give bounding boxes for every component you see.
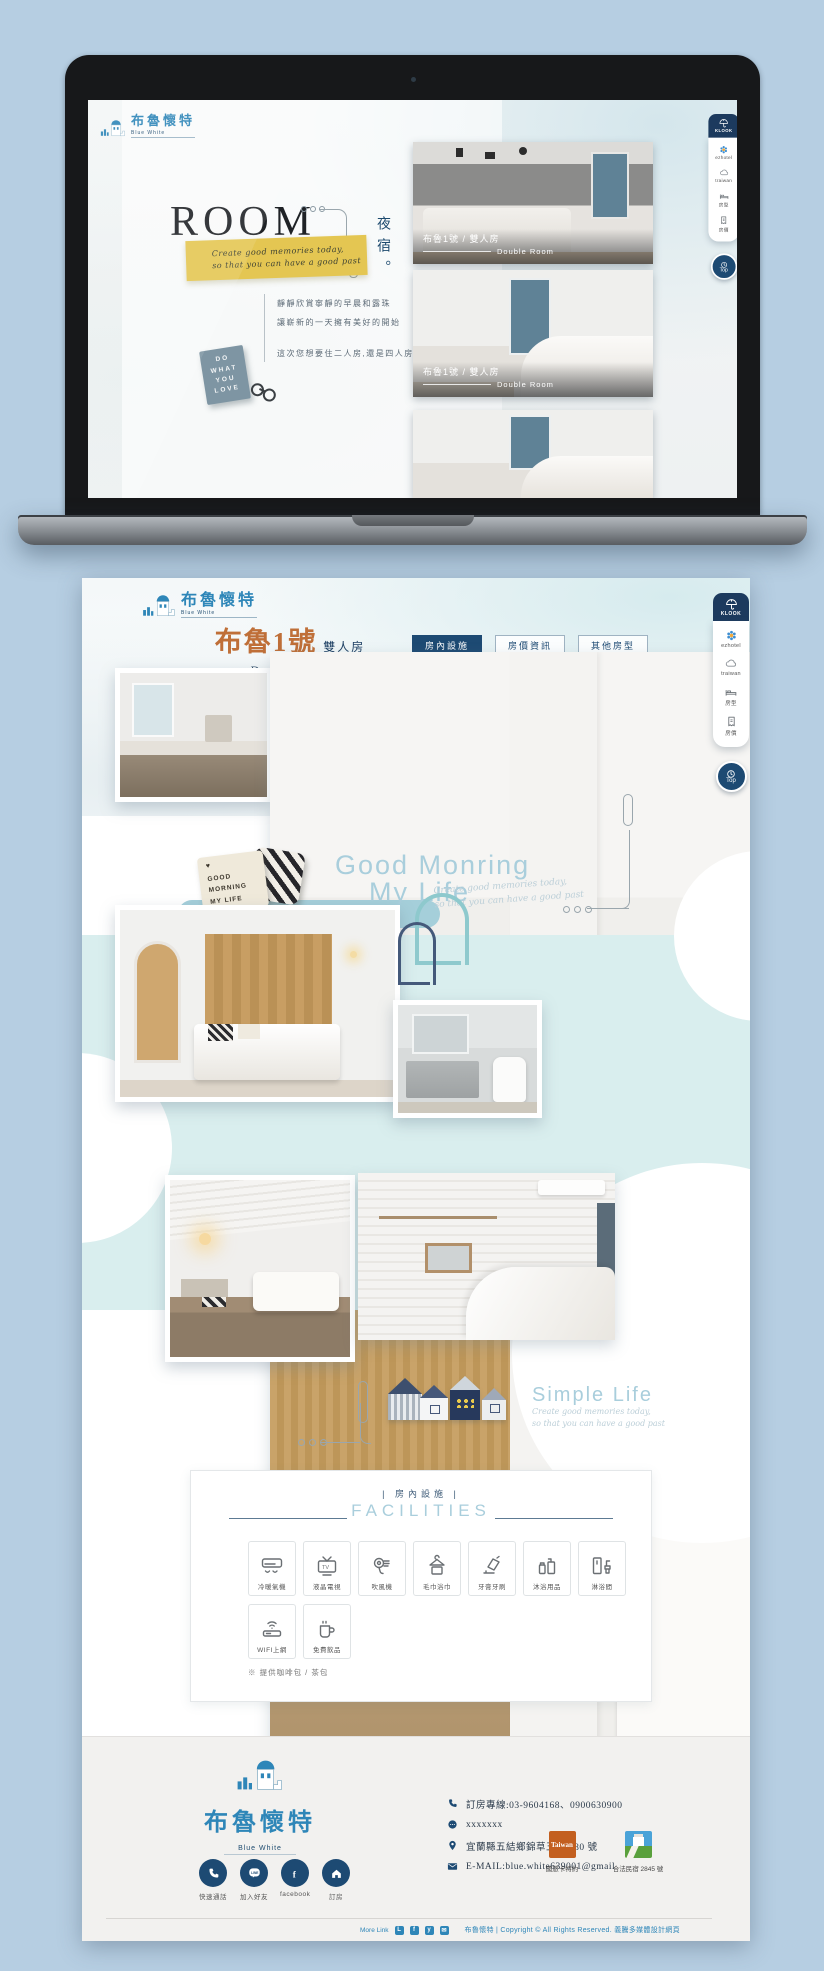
room-list-page: 布魯懷特Blue White ROOM 夜宿。 Create good memo… xyxy=(88,100,737,498)
brand-logo[interactable]: 布魯懷特Blue White xyxy=(100,110,195,138)
intro-line1: 靜靜欣賞寧靜的早晨和露珠 xyxy=(277,294,429,313)
room-card-subtitle: Double Room xyxy=(497,247,554,256)
sidebar-item-ezhotel[interactable]: ezhotel xyxy=(713,625,749,653)
map-pin-icon xyxy=(447,1840,458,1851)
vertical-label: 夜宿。 xyxy=(372,216,392,282)
footer-bottom-bar: More Link L f y ✉ 布魯懷特 | Copyright © All… xyxy=(360,1925,680,1935)
presentation-canvas: 布魯懷特Blue White ROOM 夜宿。 Create good memo… xyxy=(0,0,824,1971)
brand-name-en: Blue White xyxy=(181,610,257,618)
svg-text:f: f xyxy=(292,1869,296,1879)
brand-logo-icon xyxy=(236,1757,284,1793)
sidebar-item-ezhotel[interactable]: ezhotel xyxy=(708,141,737,164)
social-booking[interactable]: 訂房 xyxy=(321,1859,351,1901)
facebook-icon[interactable]: f xyxy=(410,1926,419,1935)
svg-text:LINE: LINE xyxy=(251,1871,258,1875)
brand-name: 布魯懷特 xyxy=(200,1802,320,1837)
room-card[interactable]: 布魯1號 / 雙人房 Double Room xyxy=(413,142,653,264)
svg-text:TV: TV xyxy=(322,1565,329,1571)
do-what-you-love-sign: DOWHAT YOULOVE xyxy=(199,345,251,405)
photo-attic-bedroom xyxy=(165,1175,355,1362)
free-drinks-icon xyxy=(314,1617,340,1641)
facility-toothbrush: 牙膏牙刷 xyxy=(468,1541,516,1596)
chat-icon xyxy=(447,1819,458,1830)
phone-icon xyxy=(447,1798,458,1809)
laptop-notch xyxy=(352,515,474,526)
line-app-icon: LINE xyxy=(247,1866,262,1880)
contact-phone-row: 訂房專線:03-9604168、0900630900 xyxy=(447,1793,623,1814)
brand-name: 布魯懷特 xyxy=(181,592,257,609)
facebook-icon: f xyxy=(289,1867,302,1880)
photo-brick-wall-bedroom xyxy=(358,1173,615,1340)
taiwan-cert-logo: Taiwan xyxy=(549,1831,576,1858)
cert-legal-bnb: 合法民宿 2845 號 xyxy=(609,1831,667,1873)
beach-umbrella-icon xyxy=(725,598,738,611)
legal-bnb-logo xyxy=(625,1831,652,1858)
email-icon[interactable]: ✉ xyxy=(440,1926,449,1935)
shower-icon xyxy=(589,1554,615,1578)
booking-tab[interactable]: KLOOK xyxy=(713,593,749,621)
decoration-left xyxy=(298,1439,327,1446)
room-card[interactable] xyxy=(413,410,653,498)
beach-umbrella-icon xyxy=(719,118,729,128)
price-tag-icon xyxy=(719,215,729,225)
room-detail-page: 布魯懷特Blue White 布魯1號雙人房 Double Room 房內設施 … xyxy=(82,578,750,1941)
laptop-camera-dot xyxy=(411,77,416,82)
flower-icon xyxy=(719,145,729,155)
sidebar-item-traiwan[interactable]: traiwan xyxy=(713,653,749,681)
brand-logo[interactable]: 布魯懷特Blue White xyxy=(142,586,257,618)
booking-sidebar: KLOOK ezhotel traiwan 房型 房價 xyxy=(713,593,749,792)
cloud-icon xyxy=(718,168,729,178)
air-conditioner-icon xyxy=(259,1554,285,1578)
footer-divider xyxy=(106,1918,712,1919)
hair-dryer-icon xyxy=(369,1554,395,1578)
booking-home-icon xyxy=(330,1867,343,1880)
bed-icon xyxy=(718,191,729,201)
brand-name-en: Blue White xyxy=(131,130,195,138)
bath-supplies-icon xyxy=(534,1554,560,1578)
sidebar-item-room-types[interactable]: 房型 xyxy=(708,187,737,212)
arch-outline-navy xyxy=(398,922,436,985)
footer-certifications: Taiwan 國旅卡特約 合法民宿 2845 號 xyxy=(533,1831,667,1873)
room-card-list: 布魯1號 / 雙人房 Double Room 布魯1號 / 雙人房 Double… xyxy=(413,100,653,498)
yellow-script-banner: Create good memories today, so that you … xyxy=(185,235,367,281)
photo-desk-nook xyxy=(115,668,272,802)
brand-name: 布魯懷特 xyxy=(131,113,195,128)
copyright-text: 布魯懷特 | Copyright © All Rights Reserved. … xyxy=(465,1925,680,1935)
facilities-note: ※ 提供咖啡包 / 茶包 xyxy=(248,1667,328,1678)
page-footer: 布魯懷特 Blue White 快速通話 LINE 加入好友 f faceboo… xyxy=(82,1736,750,1941)
twitter-icon[interactable]: y xyxy=(425,1926,434,1935)
room-card-caption: 布魯1號 / 雙人房 Double Room xyxy=(413,362,653,397)
room-card-caption: 布魯1號 / 雙人房 Double Room xyxy=(413,229,653,264)
booking-tab[interactable]: KLOOK xyxy=(708,114,737,138)
tv-icon: TV xyxy=(314,1554,340,1578)
photo-bathroom xyxy=(393,1000,542,1118)
social-line[interactable]: LINE 加入好友 xyxy=(239,1859,269,1901)
towel-hanger-icon xyxy=(424,1554,450,1578)
flower-icon xyxy=(725,629,738,642)
facility-wifi: WIFI上網 xyxy=(248,1604,296,1659)
sidebar-item-room-rates[interactable]: 房價 xyxy=(713,711,749,741)
intro-paragraph: 靜靜欣賞寧靜的早晨和露珠 讓嶄新的一天擁有美好的開始 這次您想要住二人房,還是四… xyxy=(264,294,429,362)
sidebar-item-room-types[interactable]: 房型 xyxy=(713,681,749,711)
cert-taiwan: Taiwan 國旅卡特約 xyxy=(533,1831,591,1873)
email-icon xyxy=(447,1861,458,1872)
facility-free-drinks: 免費飲品 xyxy=(303,1604,351,1659)
back-to-top-button[interactable]: Top xyxy=(716,761,747,792)
brand-logo-icon xyxy=(142,593,176,618)
facilities-heading-zh: | 房內設施 | xyxy=(191,1487,651,1500)
photo-wood-headboard-bedroom xyxy=(115,905,400,1102)
back-to-top-button[interactable]: Top xyxy=(711,253,737,279)
social-facebook[interactable]: f facebook xyxy=(280,1859,310,1901)
laptop-base xyxy=(18,515,807,545)
simple-life-script: Create good memories today, so that you … xyxy=(532,1406,665,1430)
footer-logo: 布魯懷特 Blue White xyxy=(200,1757,320,1855)
brand-name-en: Blue White xyxy=(224,1844,296,1855)
facility-tv: TV 液晶電視 xyxy=(303,1541,351,1596)
room-card-subtitle: Double Room xyxy=(497,380,554,389)
sidebar-item-room-rates[interactable]: 房價 xyxy=(708,212,737,237)
facility-shower: 淋浴間 xyxy=(578,1541,626,1596)
room-card-title: 布魯1號 / 雙人房 xyxy=(423,365,653,378)
room-card[interactable]: 布魯1號 / 雙人房 Double Room xyxy=(413,270,653,397)
houses-illustration xyxy=(388,1376,506,1420)
facility-air-conditioner: 冷暖氣機 xyxy=(248,1541,296,1596)
footer-social-buttons: 快速通話 LINE 加入好友 f facebook 訂房 xyxy=(198,1859,351,1901)
facility-towels: 毛巾浴巾 xyxy=(413,1541,461,1596)
room-card-title: 布魯1號 / 雙人房 xyxy=(423,232,653,245)
simple-life-heading: Simple Life xyxy=(532,1384,653,1407)
bed-icon xyxy=(724,685,738,698)
sidebar-item-traiwan[interactable]: traiwan xyxy=(708,164,737,187)
intro-question: 這次您想要住二人房,還是四人房呢? xyxy=(277,346,429,362)
facilities-panel: | 房內設施 | FACILITIES 冷暖氣機 TV 液晶電視 吹風機 xyxy=(190,1470,652,1702)
line-app-icon[interactable]: L xyxy=(395,1926,404,1935)
facility-hair-dryer: 吹風機 xyxy=(358,1541,406,1596)
social-phone[interactable]: 快速通話 xyxy=(198,1859,228,1901)
laptop-mockup: 布魯懷特Blue White ROOM 夜宿。 Create good memo… xyxy=(65,55,760,515)
facilities-grid: 冷暖氣機 TV 液晶電視 吹風機 毛巾浴巾 牙膏牙刷 xyxy=(248,1541,628,1659)
toothbrush-icon xyxy=(479,1554,505,1578)
room-photo xyxy=(413,410,653,498)
booking-sidebar: KLOOK ezhotel traiwan 房型 xyxy=(708,114,737,280)
phone-icon xyxy=(207,1867,220,1880)
brand-logo-icon xyxy=(100,118,126,138)
more-link-label: More Link xyxy=(360,1927,389,1934)
decoration-right xyxy=(563,906,592,913)
price-tag-icon xyxy=(725,715,738,728)
cloud-icon xyxy=(724,657,738,670)
intro-line2: 讓嶄新的一天擁有美好的開始 xyxy=(277,313,429,332)
facility-bath-supplies: 沐浴用品 xyxy=(523,1541,571,1596)
wifi-router-icon xyxy=(259,1617,285,1641)
